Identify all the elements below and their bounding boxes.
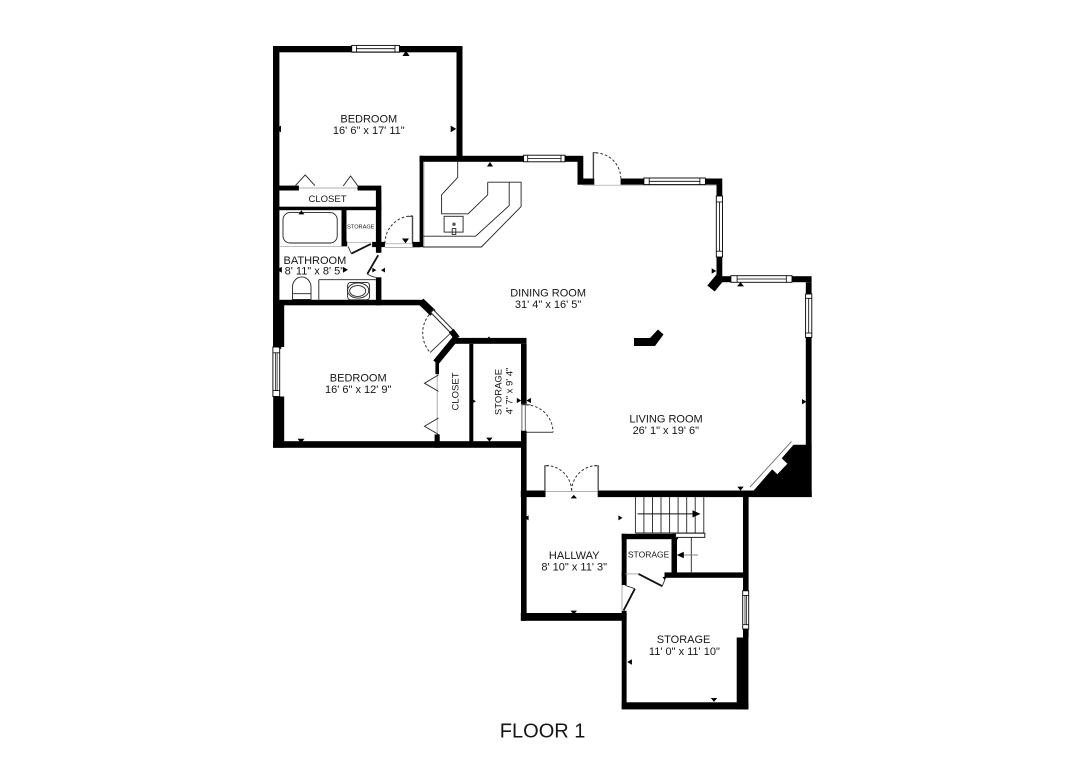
svg-text:8' 11" x 8' 5": 8' 11" x 8' 5": [285, 265, 345, 277]
svg-text:16' 6" x 17' 11": 16' 6" x 17' 11": [333, 125, 405, 137]
svg-text:STORAGE: STORAGE: [657, 634, 711, 646]
svg-text:LIVING ROOM: LIVING ROOM: [629, 414, 702, 426]
svg-text:8' 10" x 11' 3": 8' 10" x 11' 3": [541, 562, 607, 574]
svg-text:4' 7" x 9' 4": 4' 7" x 9' 4": [504, 368, 515, 415]
svg-text:CLOSET: CLOSET: [451, 372, 462, 410]
svg-text:STORAGE: STORAGE: [628, 549, 670, 559]
svg-text:HALLWAY: HALLWAY: [549, 550, 600, 562]
svg-text:11' 0" x 11' 10": 11' 0" x 11' 10": [649, 646, 720, 658]
svg-text:CLOSET: CLOSET: [308, 194, 346, 205]
svg-text:26' 1" x 19' 6": 26' 1" x 19' 6": [633, 425, 700, 437]
svg-text:BEDROOM: BEDROOM: [340, 113, 397, 125]
svg-text:BEDROOM: BEDROOM: [330, 373, 387, 385]
svg-text:STORAGE: STORAGE: [494, 369, 505, 415]
svg-text:16' 6" x 12' 9": 16' 6" x 12' 9": [325, 384, 392, 396]
svg-text:FLOOR 1: FLOOR 1: [500, 721, 586, 743]
svg-text:31' 4" x 16' 5": 31' 4" x 16' 5": [515, 299, 582, 311]
svg-text:DINING ROOM: DINING ROOM: [510, 287, 586, 299]
svg-text:STORAGE: STORAGE: [347, 224, 375, 230]
